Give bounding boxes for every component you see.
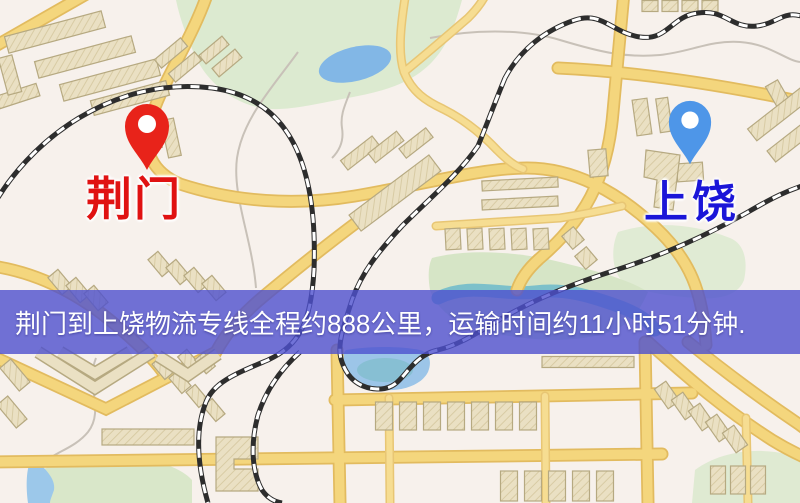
building bbox=[448, 402, 465, 430]
route-info-text: 荆门到上饶物流专线全程约888公里，运输时间约11小时51分钟. bbox=[0, 304, 746, 341]
logistics-route-map[interactable]: 荆门 上饶 荆门到上饶物流专线全程约888公里，运输时间约11小时51分钟. bbox=[0, 0, 800, 503]
building bbox=[549, 471, 566, 501]
destination-city-label: 上饶 bbox=[644, 181, 740, 225]
building bbox=[731, 466, 746, 494]
building bbox=[542, 357, 634, 368]
building bbox=[496, 402, 513, 430]
building bbox=[489, 228, 505, 250]
building bbox=[472, 402, 489, 430]
building bbox=[751, 466, 766, 494]
building bbox=[573, 471, 590, 501]
building bbox=[682, 1, 698, 12]
map-canvas[interactable] bbox=[0, 0, 800, 503]
building bbox=[702, 1, 718, 12]
building bbox=[588, 149, 608, 177]
building bbox=[520, 402, 537, 430]
origin-city-label: 荆门 bbox=[86, 176, 182, 222]
building bbox=[711, 466, 726, 494]
building bbox=[400, 402, 417, 430]
building bbox=[102, 429, 194, 445]
building bbox=[511, 228, 527, 250]
building bbox=[642, 1, 658, 12]
building bbox=[597, 471, 614, 501]
building bbox=[662, 1, 678, 12]
building bbox=[376, 402, 393, 430]
building bbox=[533, 228, 549, 250]
building bbox=[501, 471, 518, 501]
building bbox=[467, 228, 483, 250]
building bbox=[445, 228, 461, 250]
route-info-banner: 荆门到上饶物流专线全程约888公里，运输时间约11小时51分钟. bbox=[0, 290, 800, 354]
building bbox=[424, 402, 441, 430]
building bbox=[525, 471, 542, 501]
